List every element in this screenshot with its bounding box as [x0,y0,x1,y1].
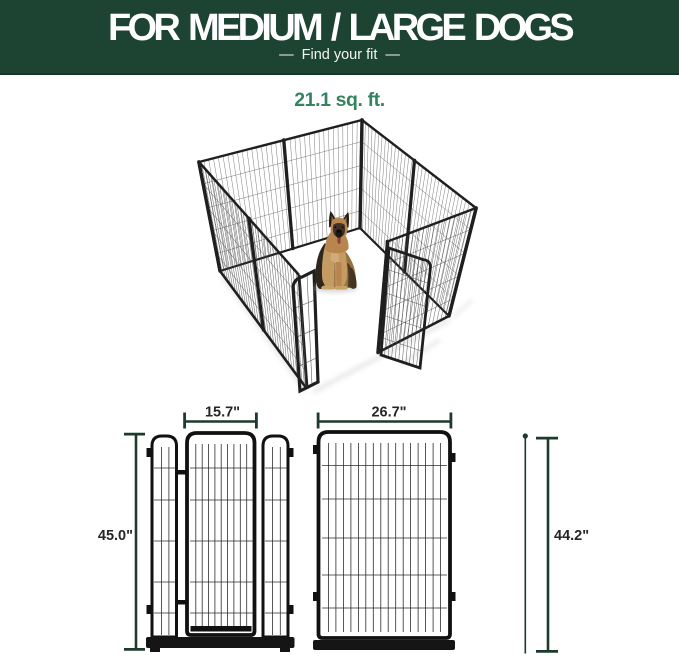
svg-text:45.0": 45.0" [98,528,133,544]
svg-text:15.7": 15.7" [205,405,240,421]
svg-text:26.7": 26.7" [371,405,406,421]
svg-text:44.2": 44.2" [554,528,589,544]
